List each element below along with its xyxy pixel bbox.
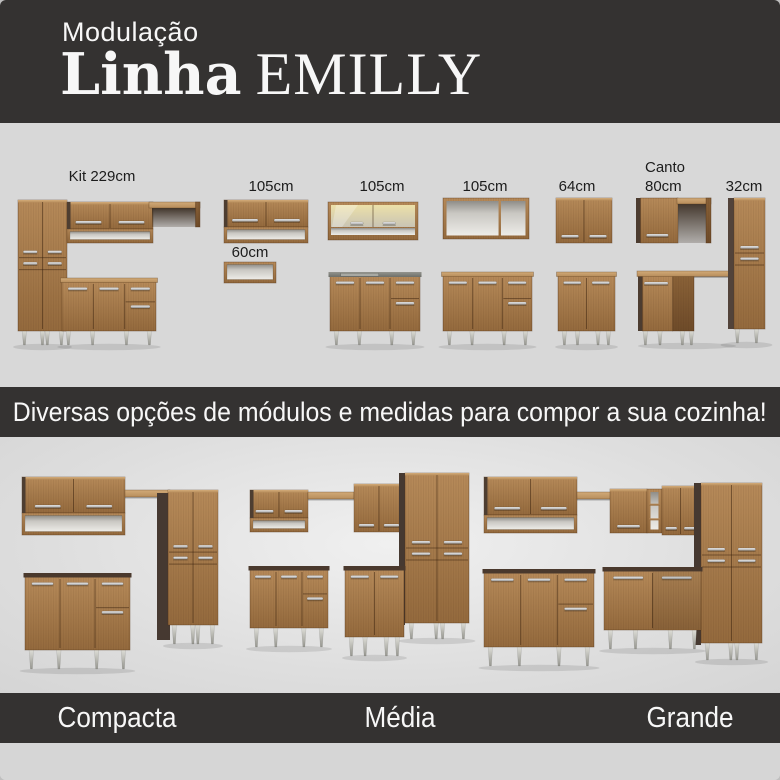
- label-32: 32cm: [704, 177, 780, 196]
- promo-banner-root: Modulação LinhaEMILLY Diversas opções de…: [0, 0, 780, 780]
- brand-linha: Linha: [60, 41, 242, 108]
- bottom-margin: [0, 743, 780, 780]
- label-64: 64cm: [537, 177, 617, 196]
- label-canto-line1: Canto: [645, 158, 715, 177]
- label-105-glass: 105cm: [342, 177, 422, 196]
- size-options-labels: Compacta Média Grande: [0, 693, 780, 743]
- option-grande: Grande: [646, 693, 733, 743]
- label-105-wall: 105cm: [231, 177, 311, 196]
- option-media: Média: [364, 693, 435, 743]
- kitchen-options-section: [0, 437, 780, 693]
- banner-strip: Diversas opções de módulos e medidas par…: [0, 387, 780, 437]
- header: Modulação LinhaEMILLY: [0, 0, 780, 123]
- page-title: LinhaEMILLY: [60, 40, 482, 109]
- option-compacta: Compacta: [58, 693, 177, 743]
- label-105-open: 105cm: [445, 177, 525, 196]
- label-kit-229: Kit 229cm: [42, 167, 162, 186]
- banner-text: Diversas opções de módulos e medidas par…: [13, 397, 767, 428]
- label-60-shelf: 60cm: [212, 243, 288, 262]
- brand-emilly: EMILLY: [256, 41, 483, 107]
